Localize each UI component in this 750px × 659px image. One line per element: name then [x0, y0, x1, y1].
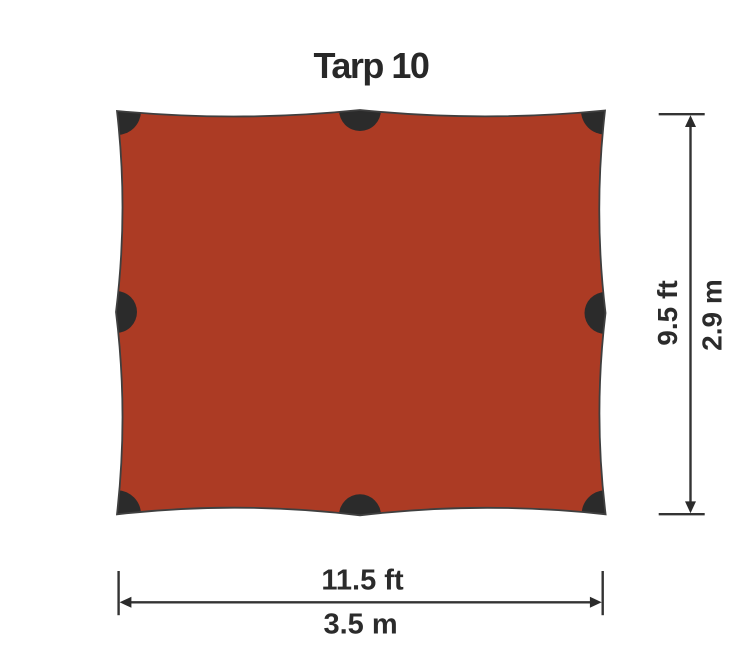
svg-text:2.9 m: 2.9 m — [696, 279, 727, 351]
svg-text:Tarp 10: Tarp 10 — [314, 45, 429, 86]
svg-text:9.5 ft: 9.5 ft — [652, 280, 683, 345]
svg-text:11.5 ft: 11.5 ft — [321, 565, 404, 597]
svg-text:3.5 m: 3.5 m — [324, 608, 398, 640]
